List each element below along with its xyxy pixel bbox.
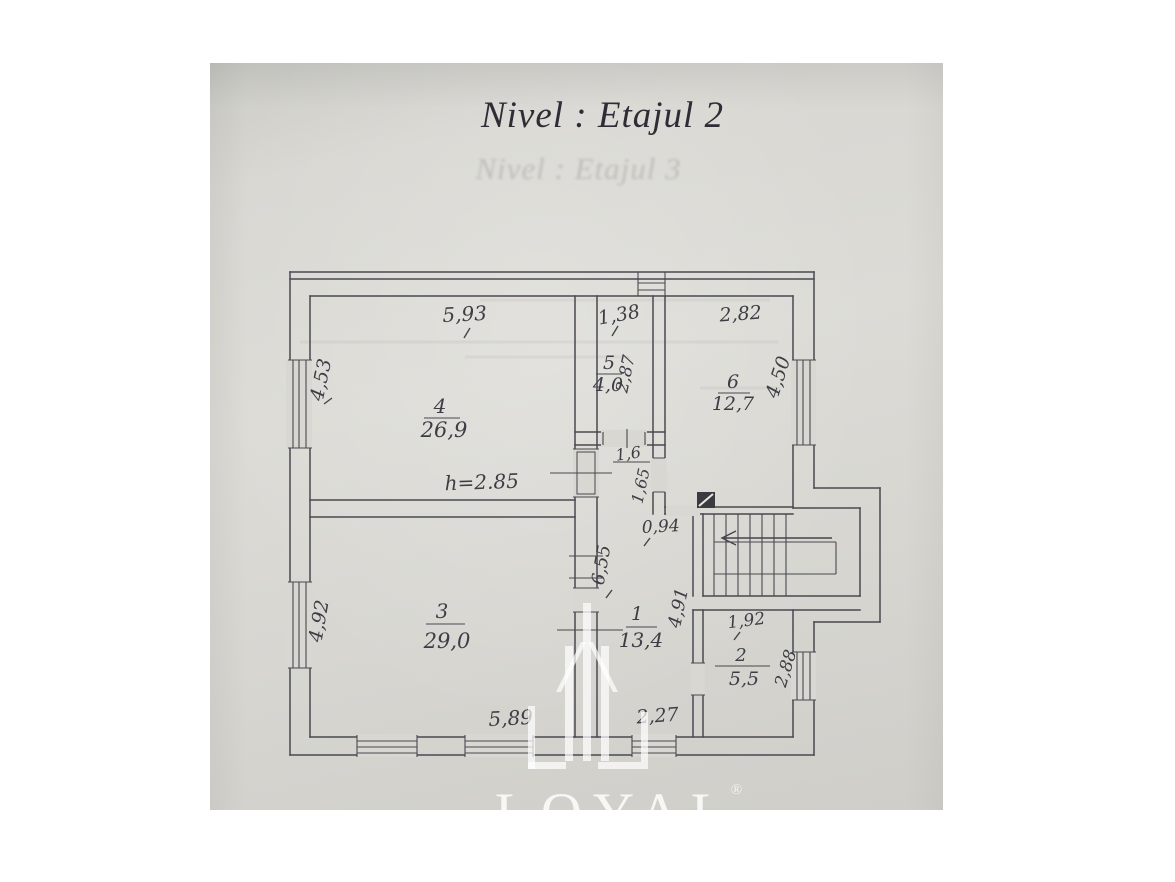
room2-area: 5,5	[729, 668, 759, 690]
ceiling-height-note: h=2.85	[444, 469, 519, 496]
dim-stair-passage: 0,94	[641, 516, 680, 538]
dim-room2-top: 1,92	[726, 609, 766, 633]
room5-number: 5	[603, 352, 615, 374]
windows	[286, 360, 816, 757]
staircase	[714, 514, 836, 596]
room1-area: 13,4	[619, 628, 664, 652]
dim-top-room5: 1,38	[596, 301, 641, 330]
room2-number: 2	[734, 645, 746, 666]
bleedthrough-lines	[300, 300, 780, 388]
floor-plan: 5,93 1,38 2,82 4,53 4,92 4,50 2,88 2,87 …	[210, 63, 943, 810]
room4-area: 26,9	[420, 418, 468, 442]
registered-trademark-icon: ®	[731, 782, 742, 798]
vent-detail	[638, 272, 665, 296]
dim-hall-top: 1,6	[614, 442, 642, 464]
room4-number: 4	[433, 394, 447, 418]
loyal-watermark-text: LOYAL®	[210, 781, 943, 810]
screenshot-root: { "page": { "title": "Nivel : Etajul 2",…	[0, 0, 1175, 882]
dim-bottom-room3: 5,89	[488, 705, 534, 731]
dimension-labels: 5,93 1,38 2,82 4,53 4,92 4,50 2,88 2,87 …	[304, 301, 801, 732]
room6-number: 6	[727, 371, 739, 393]
dim-top-room6: 2,82	[718, 302, 763, 327]
scanned-page: Nivel : Etajul 2 Nivel : Etajul 3	[210, 63, 943, 810]
room6-area: 12,7	[712, 393, 755, 415]
shaft-symbol	[697, 492, 715, 508]
room3-area: 29,0	[423, 629, 471, 653]
dim-right-room6: 4,50	[761, 354, 795, 402]
room5-area: 4,0	[592, 374, 623, 396]
dim-hall-height: 4,91	[664, 586, 693, 631]
dim-hall-side: 1,65	[628, 466, 654, 505]
dim-hall-length: 6,55	[588, 543, 616, 586]
dim-top-room4: 5,93	[442, 301, 488, 327]
room3-number: 3	[436, 599, 449, 623]
room1-number: 1	[631, 603, 643, 625]
brand-name: LOYAL	[495, 782, 737, 810]
